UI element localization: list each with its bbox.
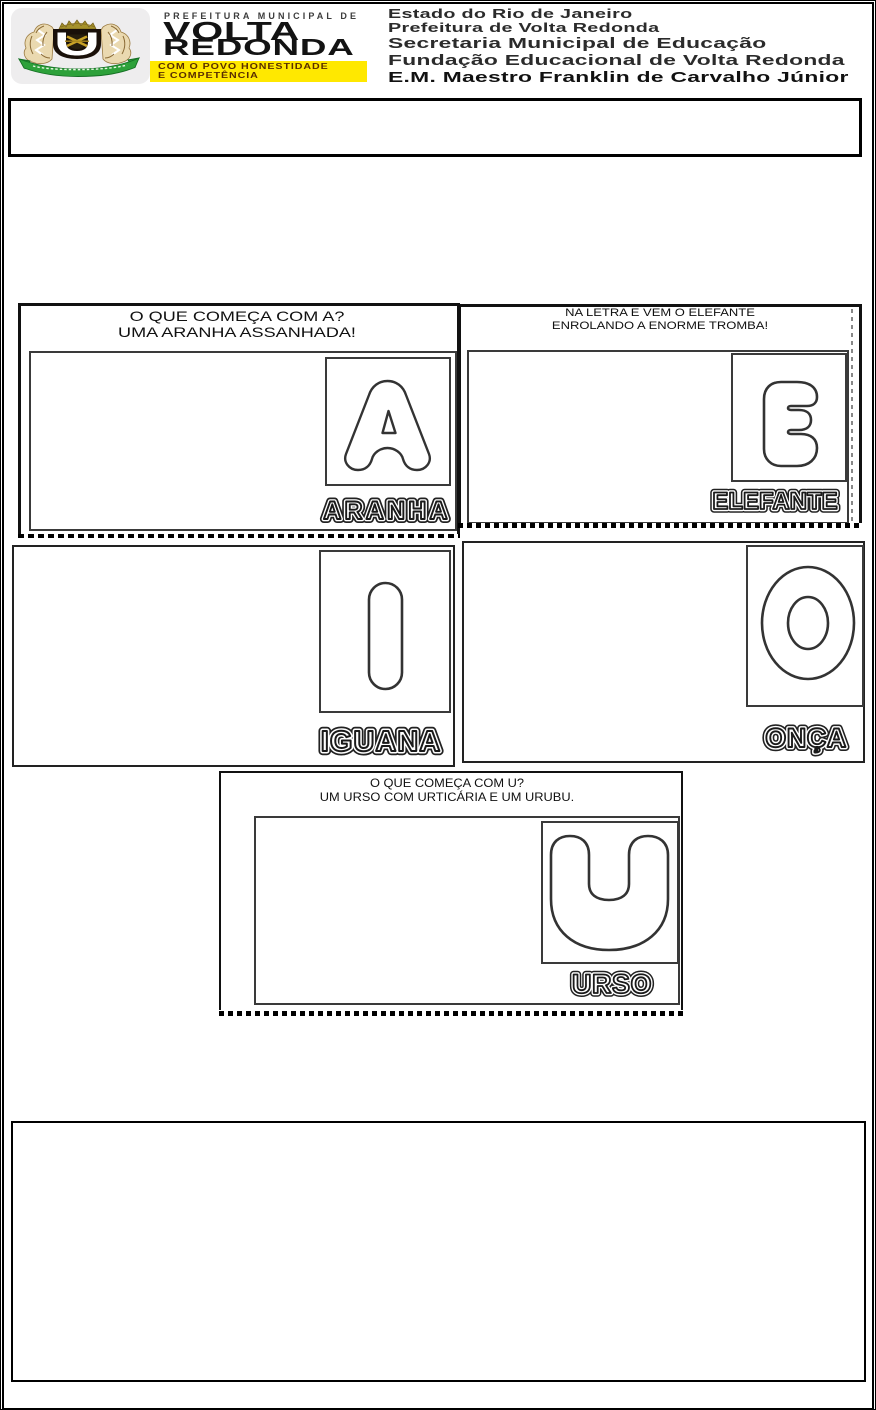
svg-text:URSO: URSO: [572, 969, 652, 999]
svg-text:ONÇA: ONÇA: [765, 723, 847, 753]
svg-text:IGUANA: IGUANA: [321, 726, 441, 758]
svg-text:ARANHA: ARANHA: [323, 497, 451, 525]
svg-text:ELEFANTE: ELEFANTE: [712, 488, 837, 515]
